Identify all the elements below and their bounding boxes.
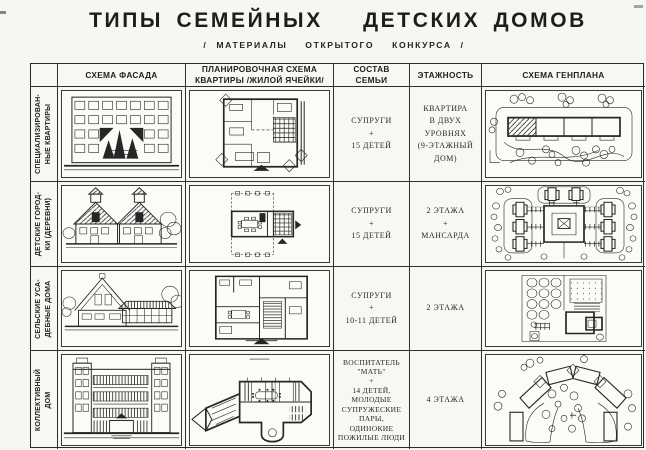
homestead-house-facade-drawing xyxy=(61,270,182,347)
floors-cell: КВАРТИРА В ДВУХ УРОВНЯХ (9-ЭТАЖНЫЙ ДОМ) xyxy=(410,87,482,182)
floors-cell: 4 ЭТАЖА xyxy=(410,351,482,449)
row-label-text: СПЕЦИАЛИЗИРОВАН- НЫЕ КВАРТИРЫ xyxy=(34,89,54,179)
header-facade: СХЕМА ФАСАДА xyxy=(58,64,186,87)
genplan-cell xyxy=(482,267,645,351)
family-cell: СУПРУГИ + 15 ДЕТЕЙ xyxy=(334,87,410,182)
plan-cell xyxy=(186,351,334,449)
collective-house-siteplan-drawing xyxy=(485,354,642,446)
header-family: СОСТАВ СЕМЬИ xyxy=(334,64,410,87)
scan-artifact xyxy=(634,5,643,8)
floors-cell: 2 ЭТАЖА + МАНСАРДА xyxy=(410,182,482,267)
apartment-block-siteplan-drawing xyxy=(485,90,642,178)
header-genplan: СХЕМА ГЕНПЛАНА xyxy=(482,64,645,87)
row-label-text: СЕЛЬСКИЕ УСА- ДЕБНЫЕ ДОМА xyxy=(34,269,54,348)
cottage-plan-drawing xyxy=(189,185,330,263)
apartment-block-facade-drawing xyxy=(61,90,182,178)
homestead-siteplan-drawing xyxy=(485,270,642,347)
typology-table: СХЕМА ФАСАДА ПЛАНИРОВОЧНАЯ СХЕМА КВАРТИР… xyxy=(30,63,644,448)
homestead-house-plan-drawing xyxy=(189,270,330,347)
page-title: ТИПЫ СЕМЕЙНЫХ ДЕТСКИХ ДОМОВ xyxy=(0,9,646,33)
cottage-pair-facade-drawing xyxy=(61,185,182,263)
row-label-specialized-apartments: СПЕЦИАЛИЗИРОВАН- НЫЕ КВАРТИРЫ xyxy=(31,87,58,182)
facade-cell xyxy=(58,182,186,267)
row-label-childrens-villages: ДЕТСКИЕ ГОРОД- КИ (ДЕРЕВНИ) xyxy=(31,182,58,267)
plan-cell xyxy=(186,87,334,182)
header-plan: ПЛАНИРОВОЧНАЯ СХЕМА КВАРТИРЫ /ЖИЛОЙ ЯЧЕЙ… xyxy=(186,64,334,87)
scan-artifact xyxy=(0,11,6,14)
genplan-cell xyxy=(482,182,645,267)
genplan-cell xyxy=(482,87,645,182)
plan-cell xyxy=(186,267,334,351)
header-floors: ЭТАЖНОСТЬ xyxy=(410,64,482,87)
facade-cell xyxy=(58,351,186,449)
page-subtitle: / МАТЕРИАЛЫ ОТКРЫТОГО КОНКУРСА / xyxy=(0,40,646,50)
scanned-competition-sheet: ТИПЫ СЕМЕЙНЫХ ДЕТСКИХ ДОМОВ / МАТЕРИАЛЫ … xyxy=(0,0,646,450)
collective-house-facade-drawing xyxy=(61,354,182,446)
two-level-apartment-plan-drawing xyxy=(189,90,330,178)
row-label-rural-homestead-houses: СЕЛЬСКИЕ УСА- ДЕБНЫЕ ДОМА xyxy=(31,267,58,351)
row-label-text: КОЛЛЕКТИВНЫЙ ДОМ xyxy=(34,354,54,447)
collective-house-plan-drawing xyxy=(189,354,330,446)
plan-cell xyxy=(186,182,334,267)
facade-cell xyxy=(58,267,186,351)
village-siteplan-drawing xyxy=(485,185,642,263)
facade-cell xyxy=(58,87,186,182)
family-cell: СУПРУГИ + 10-11 ДЕТЕЙ xyxy=(334,267,410,351)
genplan-cell xyxy=(482,351,645,449)
row-label-collective-house: КОЛЛЕКТИВНЫЙ ДОМ xyxy=(31,351,58,449)
family-cell: ВОСПИТАТЕЛЬ "МАТЬ" + 14 ДЕТЕЙ, МОЛОДЫЕ С… xyxy=(334,351,410,449)
row-label-text: ДЕТСКИЕ ГОРОД- КИ (ДЕРЕВНИ) xyxy=(34,184,54,264)
family-cell: СУПРУГИ + 15 ДЕТЕЙ xyxy=(334,182,410,267)
table-corner-cell xyxy=(31,64,58,87)
floors-cell: 2 ЭТАЖА xyxy=(410,267,482,351)
